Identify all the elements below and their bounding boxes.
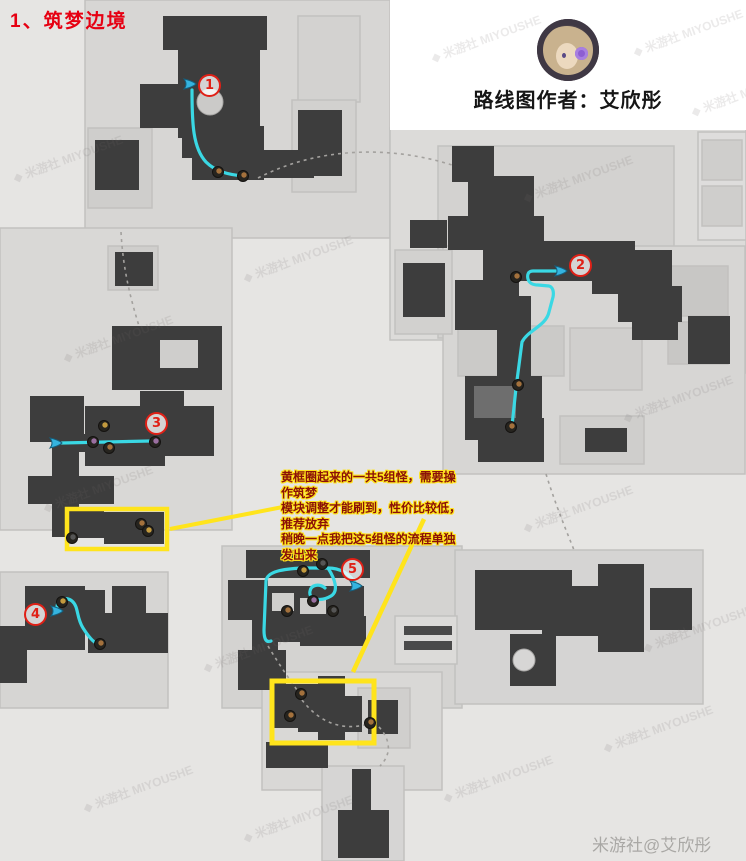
annotation-note: 黄框圈起来的一共5组怪，需要操作筑梦 模块调整才能刷到，性价比较低，推荐放弃 稍… <box>281 470 465 563</box>
author-label: 路线图作者：艾欣彤 <box>390 84 746 113</box>
avatar-hood <box>537 19 599 81</box>
route-marker-3: 3 <box>145 412 168 435</box>
page-title: 1、筑梦边境 <box>10 6 128 33</box>
route-map-image: 路线图作者：艾欣彤 1、筑梦边境 黄框圈起来的一共5组怪，需要操作筑梦 模块调整… <box>0 0 746 861</box>
route-marker-4: 4 <box>24 603 47 626</box>
route-marker-1: 1 <box>198 74 221 97</box>
corner-watermark: 米游社@艾欣彤 <box>592 831 711 856</box>
annotation-line-2: 模块调整才能刷到，性价比较低，推荐放弃 <box>281 501 465 532</box>
route-marker-2: 2 <box>569 254 592 277</box>
route-marker-5: 5 <box>341 558 364 581</box>
annotation-line-1: 黄框圈起来的一共5组怪，需要操作筑梦 <box>281 470 465 501</box>
route-path-3 <box>62 441 150 443</box>
author-credit-box: 路线图作者：艾欣彤 <box>390 0 746 130</box>
author-avatar-icon <box>537 19 599 81</box>
annotation-line-3: 稍晚一点我把这5组怪的流程单独发出来 <box>281 532 465 563</box>
